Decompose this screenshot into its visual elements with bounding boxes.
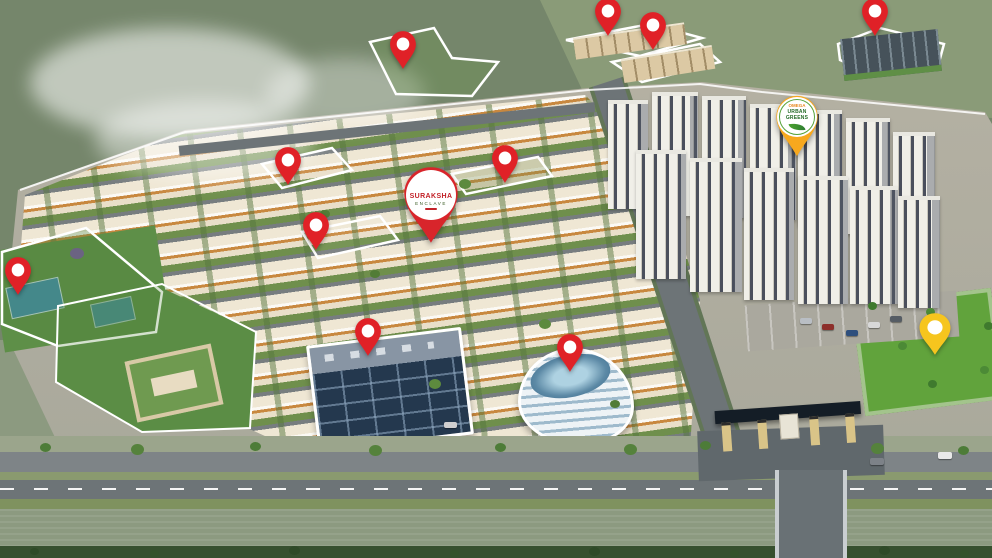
- omega-brand: OMEGA: [788, 103, 805, 109]
- pin-school-northeast[interactable]: [860, 0, 890, 37]
- pin-sports-park-west[interactable]: [3, 256, 33, 296]
- suraksha-logo-arc-icon: [418, 180, 444, 192]
- pin-lawn-southeast[interactable]: [917, 312, 953, 356]
- omega-name: URBAN GREENS: [777, 109, 817, 122]
- suraksha-enclave-pin[interactable]: SURAKSHA ENCLAVE: [400, 165, 462, 245]
- pin-commercial-building[interactable]: [353, 317, 383, 357]
- township-masterplan-scene: SURAKSHA ENCLAVE OMEGA URBAN GREENS: [0, 0, 992, 558]
- pin-villa-plot-2[interactable]: [301, 211, 331, 251]
- suraksha-subtitle: ENCLAVE: [415, 201, 447, 207]
- omega-urban-greens-pin[interactable]: OMEGA URBAN GREENS: [773, 94, 821, 158]
- pin-amenity-strip[interactable]: [490, 144, 520, 184]
- suraksha-name: SURAKSHA: [410, 193, 453, 201]
- pin-apartments-north-2[interactable]: [638, 11, 668, 51]
- pin-clubhouse[interactable]: [555, 333, 585, 373]
- pin-park-northwest[interactable]: [388, 30, 418, 70]
- markers-layer: [0, 0, 992, 558]
- pin-apartments-north-1[interactable]: [593, 0, 623, 37]
- suraksha-logo: SURAKSHA ENCLAVE: [406, 170, 456, 220]
- omega-logo: OMEGA URBAN GREENS: [777, 97, 817, 137]
- pin-villa-plot-1[interactable]: [273, 146, 303, 186]
- leaf-icon: [789, 122, 806, 132]
- suraksha-tagline-mark: [425, 208, 437, 210]
